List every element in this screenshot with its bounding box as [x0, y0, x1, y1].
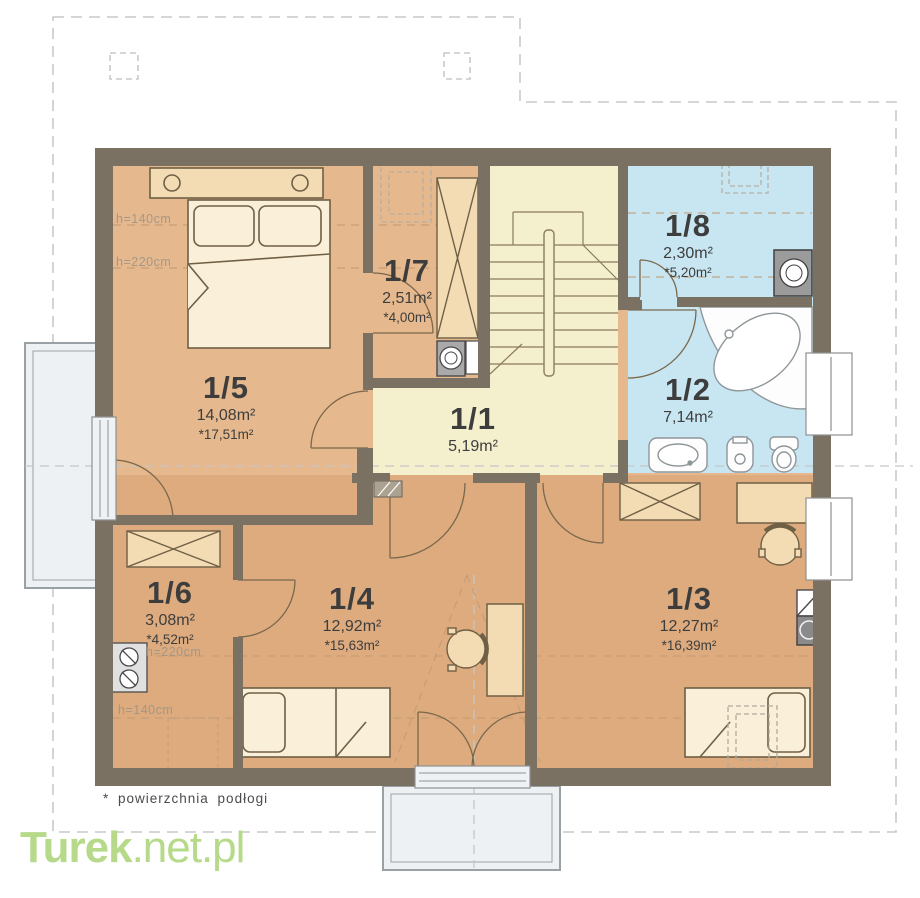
watermark-logo: Turek.net.pl [20, 826, 244, 870]
room-1-6-label: 1/6 3,08m² *4,52m² [145, 577, 195, 647]
room-area: 2,30m² [663, 246, 713, 262]
desk-icon [487, 604, 523, 696]
room-floor-area: *15,63m² [323, 639, 382, 653]
balcony-door-icon [92, 417, 116, 520]
flue-icon [111, 643, 147, 692]
room-floor-area: *17,51m² [197, 428, 256, 442]
room-number: 1/1 [448, 403, 498, 434]
floor-area-footnote: * powierzchnia podłogi [103, 791, 268, 806]
room-floor-area: *5,20m² [663, 266, 713, 280]
room-number: 1/8 [663, 210, 713, 241]
room-area: 12,27m² [660, 619, 719, 635]
bidet-icon [727, 437, 753, 472]
watermark-suffix: .net.pl [132, 823, 245, 872]
height-label: h=140cm [116, 212, 171, 226]
room-area: 12,92m² [323, 619, 382, 635]
roof-window-icon [110, 53, 138, 79]
chair-icon [759, 525, 801, 565]
room-number: 1/7 [382, 255, 432, 286]
wardrobe-icon [620, 483, 700, 520]
desk-icon [737, 483, 812, 523]
room-1-7-label: 1/7 2,51m² *4,00m² [382, 255, 432, 325]
height-label: h=220cm [116, 255, 171, 269]
balcony-bottom [383, 786, 560, 870]
room-1-1-label: 1/1 5,19m² [448, 403, 498, 455]
room-1-3-label: 1/3 12,27m² *16,39m² [660, 583, 719, 653]
single-bed-icon [238, 688, 390, 757]
watermark-brand: Turek [20, 823, 132, 872]
roof-window-icon [444, 53, 470, 79]
toilet-icon [770, 437, 798, 472]
height-label: h=220cm [146, 645, 201, 659]
room-1-5-label: 1/5 14,08m² *17,51m² [197, 372, 256, 442]
room-floor-area: *16,39m² [660, 639, 719, 653]
room-area: 7,14m² [663, 410, 713, 426]
room-number: 1/3 [660, 583, 719, 614]
floor-plan-canvas: 1/5 14,08m² *17,51m² 1/7 2,51m² *4,00m² … [0, 0, 920, 898]
single-bed-icon [685, 688, 810, 757]
room-area: 2,51m² [382, 291, 432, 307]
room-number: 1/5 [197, 372, 256, 403]
washer-icon [437, 341, 479, 376]
window-icon [806, 353, 852, 435]
window-icon [806, 498, 852, 580]
room-number: 1/2 [663, 374, 713, 405]
sink-icon [649, 438, 707, 472]
room-area: 3,08m² [145, 613, 195, 629]
washing-machine-icon [774, 250, 812, 296]
room-number: 1/6 [145, 577, 195, 608]
room-area: 14,08m² [197, 408, 256, 424]
room-floor-area: *4,00m² [382, 311, 432, 325]
room-area: 5,19m² [448, 439, 498, 455]
room-1-8-label: 1/8 2,30m² *5,20m² [663, 210, 713, 280]
duct-shaft-icon [374, 481, 402, 497]
room-1-4-label: 1/4 12,92m² *15,63m² [323, 583, 382, 653]
height-label: h=140cm [118, 703, 173, 717]
wardrobe-icon [127, 531, 220, 567]
wardrobe-icon [437, 178, 478, 338]
room-1-2-label: 1/2 7,14m² [663, 374, 713, 426]
balcony-door-icon [415, 766, 530, 788]
room-number: 1/4 [323, 583, 382, 614]
